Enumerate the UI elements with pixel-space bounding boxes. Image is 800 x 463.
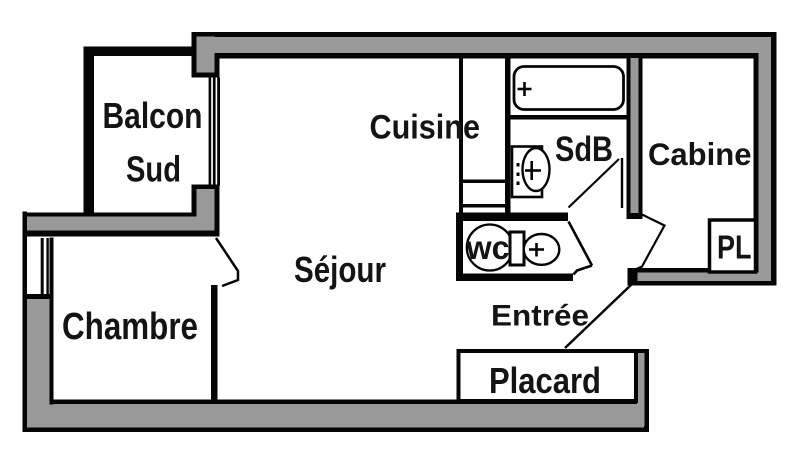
svg-text:SdB: SdB (555, 130, 613, 169)
svg-text:Cabine: Cabine (648, 137, 752, 172)
svg-text:Sud: Sud (126, 149, 181, 190)
svg-text:Entrée: Entrée (491, 300, 589, 333)
svg-text:Chambre: Chambre (62, 305, 198, 347)
svg-text:Placard: Placard (489, 360, 601, 401)
svg-text:wc: wc (466, 229, 510, 266)
svg-text:PL: PL (717, 230, 752, 267)
svg-text:Balcon: Balcon (103, 95, 203, 136)
svg-text:Séjour: Séjour (294, 249, 386, 290)
svg-text:Cuisine: Cuisine (370, 109, 481, 147)
